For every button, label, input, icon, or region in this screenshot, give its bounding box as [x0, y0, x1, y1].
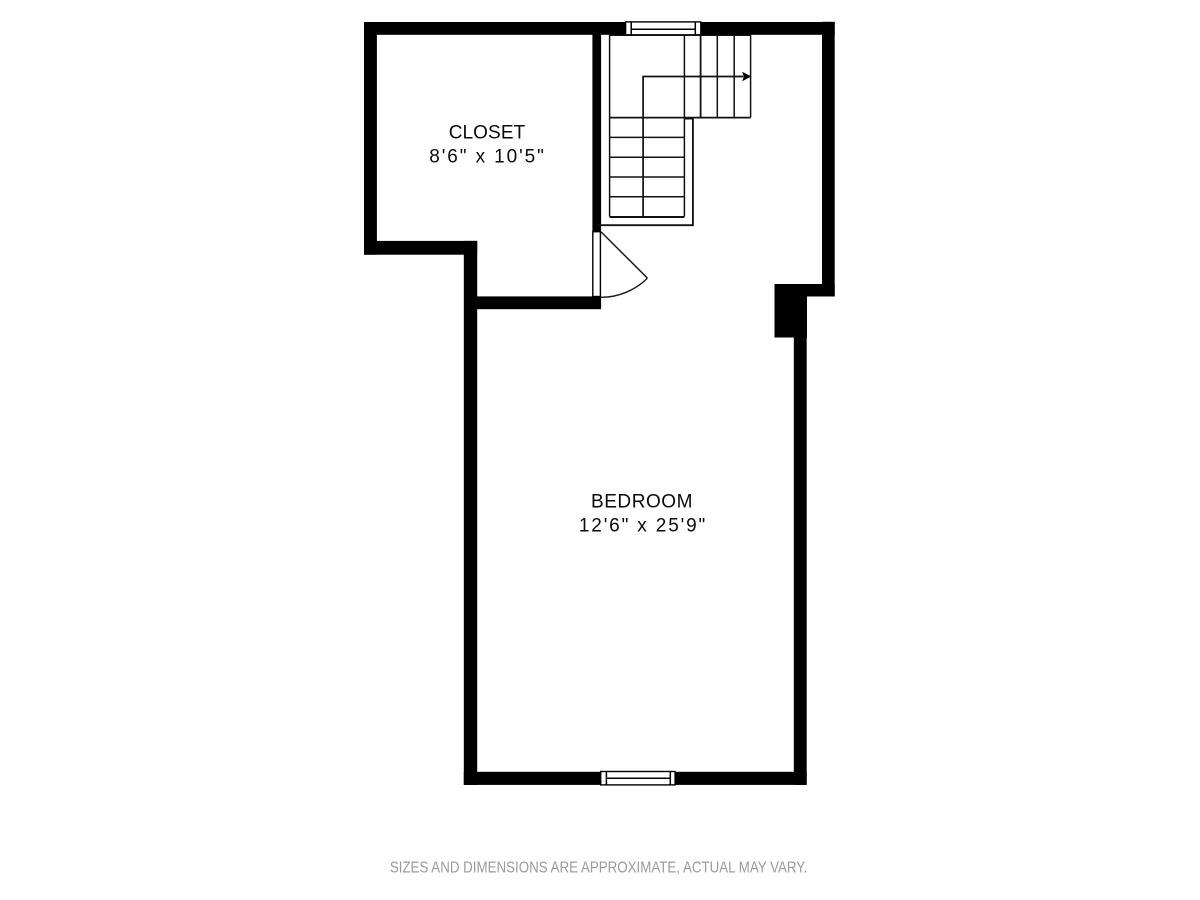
svg-text:BEDROOM: BEDROOM — [591, 492, 693, 513]
svg-text:12'6" x 25'9": 12'6" x 25'9" — [579, 516, 707, 537]
svg-text:SIZES AND DIMENSIONS ARE APPRO: SIZES AND DIMENSIONS ARE APPROXIMATE, AC… — [390, 860, 807, 877]
svg-text:8'6" x 10'5": 8'6" x 10'5" — [429, 147, 545, 168]
svg-text:CLOSET: CLOSET — [449, 123, 526, 144]
